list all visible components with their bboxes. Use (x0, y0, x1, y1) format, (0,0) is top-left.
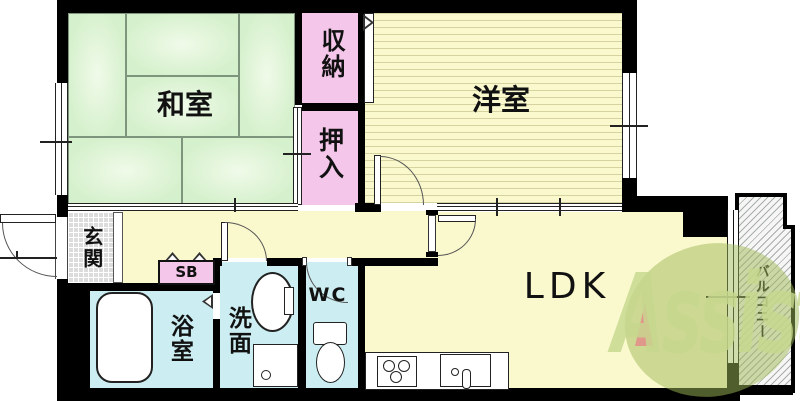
tatami-mat (126, 13, 239, 76)
wall (302, 103, 358, 111)
center-mark (610, 125, 648, 127)
wall (213, 319, 220, 390)
washbasin-tap (284, 287, 294, 315)
room-label-western: 洋室 (458, 84, 544, 118)
front-door-arc (2, 223, 57, 277)
room-label-toilet: WC (303, 284, 353, 306)
stove-burner (383, 360, 395, 372)
sliding-door-tatami (68, 203, 298, 211)
wall (57, 285, 90, 391)
center-mark (706, 296, 750, 298)
center-mark (40, 141, 72, 143)
room-label-shoebox: SB (160, 262, 213, 283)
entry-landing-line (0, 257, 57, 259)
wall (57, 0, 637, 13)
stove-burner (398, 360, 410, 372)
sliding-partition-ldk (437, 203, 622, 211)
room-label-closet: 押入 (313, 119, 347, 189)
wall (57, 193, 68, 213)
room-label-tatami: 和室 (146, 89, 224, 121)
washing-machine-pan (253, 344, 298, 387)
sink-tap (462, 369, 471, 389)
sink-drain (451, 368, 459, 376)
wall (683, 196, 728, 237)
ldk-doorway (428, 215, 436, 252)
wall (358, 266, 365, 390)
toilet-bowl (316, 342, 345, 383)
room-label-balcony: バルコニー (750, 246, 772, 356)
wall (735, 385, 793, 395)
stove-burner (390, 371, 402, 383)
balcony-window (727, 210, 739, 363)
partition-tick (234, 198, 236, 212)
center-mark (283, 153, 311, 155)
tatami-mat (239, 13, 295, 137)
tatami-mat (68, 13, 126, 137)
wall (298, 258, 306, 390)
room-label-washroom: 洗面 (222, 298, 252, 364)
bathtub (96, 292, 153, 383)
sliding-door-closet (293, 107, 302, 205)
tatami-mat (182, 137, 295, 205)
room-label-entrance: 玄関 (78, 219, 104, 277)
partition-tick (559, 198, 561, 216)
entry-landing-line (16, 251, 18, 258)
room-label-bathroom: 浴室 (164, 306, 194, 372)
bathroom-doorway (213, 293, 220, 319)
room-label-ldk: LDK (516, 266, 618, 308)
wall (348, 258, 438, 266)
washing-machine-drain (261, 370, 271, 380)
room-label-storage: 収納 (313, 20, 347, 88)
wall (622, 0, 637, 75)
partition-tick (496, 198, 498, 216)
floor-plan: 和室 洋室 収納 押入 玄関 浴室 洗面 WC SB LDK バルコニー Ass… (0, 0, 800, 401)
tatami-mat (68, 137, 182, 205)
wall (57, 0, 68, 85)
front-door-leaf (0, 214, 56, 223)
wall (295, 13, 302, 105)
door-jamb (426, 252, 438, 257)
entrance-step (113, 212, 123, 283)
window (55, 83, 68, 195)
